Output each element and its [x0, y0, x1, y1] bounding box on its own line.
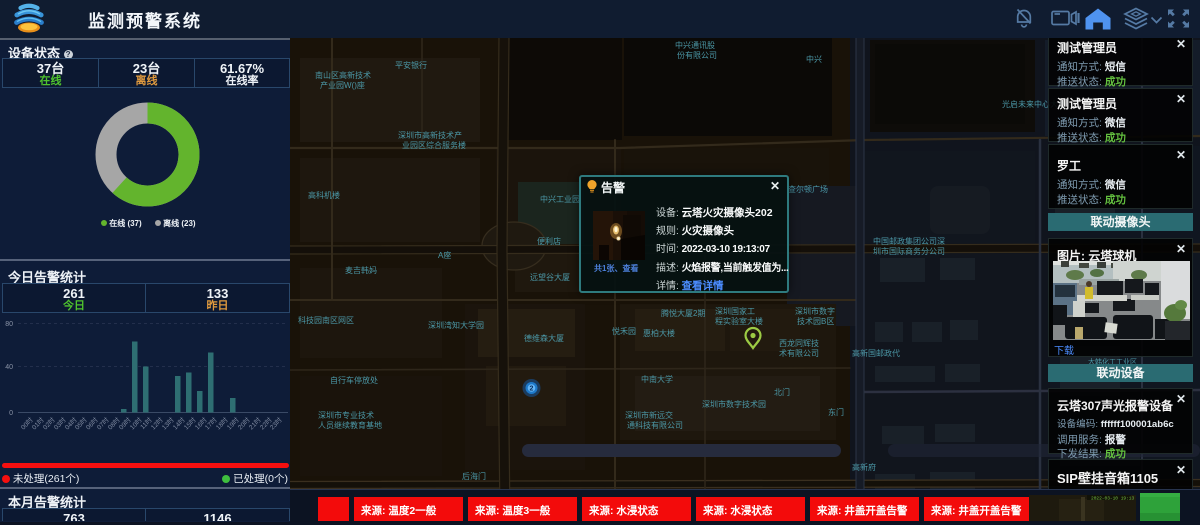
- svg-text:自行车停放处: 自行车停放处: [330, 375, 378, 385]
- svg-text:高科机楼: 高科机楼: [308, 190, 340, 200]
- svg-text:深圳国家工: 深圳国家工: [715, 306, 755, 316]
- svg-text:平安银行: 平安银行: [395, 60, 427, 70]
- svg-text:程实验室大楼: 程实验室大楼: [715, 316, 763, 326]
- svg-text:80: 80: [5, 321, 13, 328]
- svg-text:通科技有限公司: 通科技有限公司: [627, 420, 683, 430]
- svg-text:技术园B区: 技术园B区: [797, 316, 834, 326]
- svg-text:0: 0: [9, 410, 13, 417]
- svg-text:A座: A座: [438, 250, 451, 260]
- svg-text:远望谷大厦: 远望谷大厦: [530, 272, 570, 282]
- svg-text:深圳市新远交: 深圳市新远交: [625, 410, 673, 420]
- svg-text:西龙同辉技: 西龙同辉技: [779, 338, 819, 348]
- svg-text:人员继续教育基地: 人员继续教育基地: [318, 420, 382, 430]
- svg-text:深圳市高新技术产: 深圳市高新技术产: [398, 130, 462, 140]
- svg-text:东门: 东门: [828, 407, 844, 417]
- svg-text:南山区高新技术: 南山区高新技术: [315, 70, 371, 80]
- svg-text:腾悦大厦2期: 腾悦大厦2期: [661, 308, 705, 318]
- svg-text:德维森大厦: 德维森大厦: [524, 333, 564, 343]
- svg-text:术有限公司: 术有限公司: [779, 348, 819, 358]
- svg-text:北门: 北门: [774, 387, 790, 397]
- svg-text:高新国邮政代: 高新国邮政代: [852, 348, 900, 358]
- svg-text:中兴: 中兴: [806, 54, 822, 64]
- svg-text:后海门: 后海门: [462, 471, 486, 481]
- svg-text:高新府: 高新府: [852, 462, 876, 472]
- svg-text:圳市国际商务分公司: 圳市国际商务分公司: [873, 246, 945, 256]
- svg-text:悦禾园: 悦禾园: [612, 326, 636, 336]
- svg-text:深圳市专业技术: 深圳市专业技术: [318, 410, 374, 420]
- svg-text:业园区综合服务楼: 业园区综合服务楼: [402, 140, 466, 150]
- svg-text:2022-03-10 19:13: 2022-03-10 19:13: [1091, 496, 1135, 502]
- svg-text:中国邮政集团公司深: 中国邮政集团公司深: [873, 236, 945, 246]
- svg-text:查尔顿广场: 查尔顿广场: [788, 184, 828, 194]
- svg-text:40: 40: [5, 364, 13, 371]
- svg-text:科技园南区网区: 科技园南区网区: [298, 315, 354, 325]
- svg-text:深圳湾知大学园: 深圳湾知大学园: [428, 320, 484, 330]
- svg-text:深圳市数字技术园: 深圳市数字技术园: [702, 399, 766, 409]
- svg-text:便利店: 便利店: [537, 236, 561, 246]
- svg-text:份有限公司: 份有限公司: [677, 50, 717, 60]
- svg-text:中兴工业园: 中兴工业园: [540, 194, 580, 204]
- svg-text:2: 2: [530, 386, 534, 393]
- svg-text:麦吉韩妈: 麦吉韩妈: [345, 265, 377, 275]
- svg-text:惠柏大楼: 惠柏大楼: [643, 328, 675, 338]
- svg-text:产业园W()座: 产业园W()座: [320, 80, 365, 90]
- svg-text:中南大学: 中南大学: [641, 374, 673, 384]
- svg-text:深圳市数字: 深圳市数字: [795, 306, 835, 316]
- svg-text:中兴通讯股: 中兴通讯股: [675, 40, 715, 50]
